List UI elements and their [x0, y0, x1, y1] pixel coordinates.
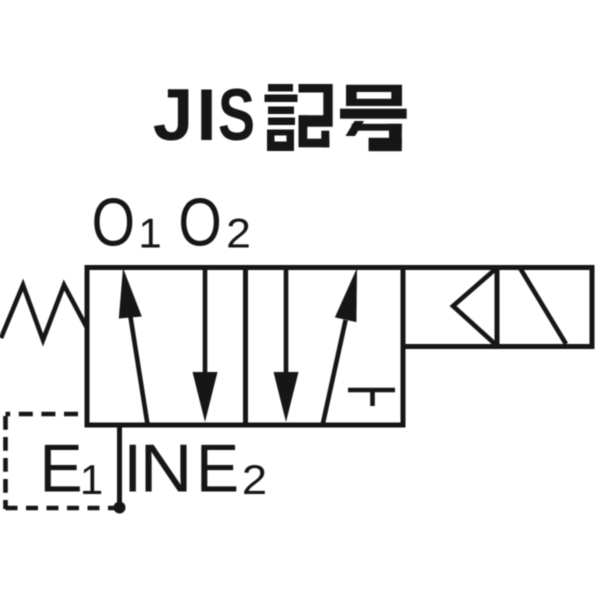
svg-text:E: E: [196, 431, 239, 507]
svg-text:1: 1: [80, 456, 103, 503]
svg-text:S: S: [218, 74, 255, 156]
svg-text:O: O: [92, 185, 135, 260]
svg-text:2: 2: [242, 457, 267, 504]
svg-text:J: J: [153, 75, 194, 156]
svg-text:I: I: [196, 75, 216, 156]
svg-text:O: O: [178, 185, 221, 260]
svg-text:N: N: [139, 430, 192, 506]
svg-text:1: 1: [138, 210, 161, 257]
svg-text:E: E: [39, 431, 82, 507]
svg-text:2: 2: [226, 211, 251, 258]
